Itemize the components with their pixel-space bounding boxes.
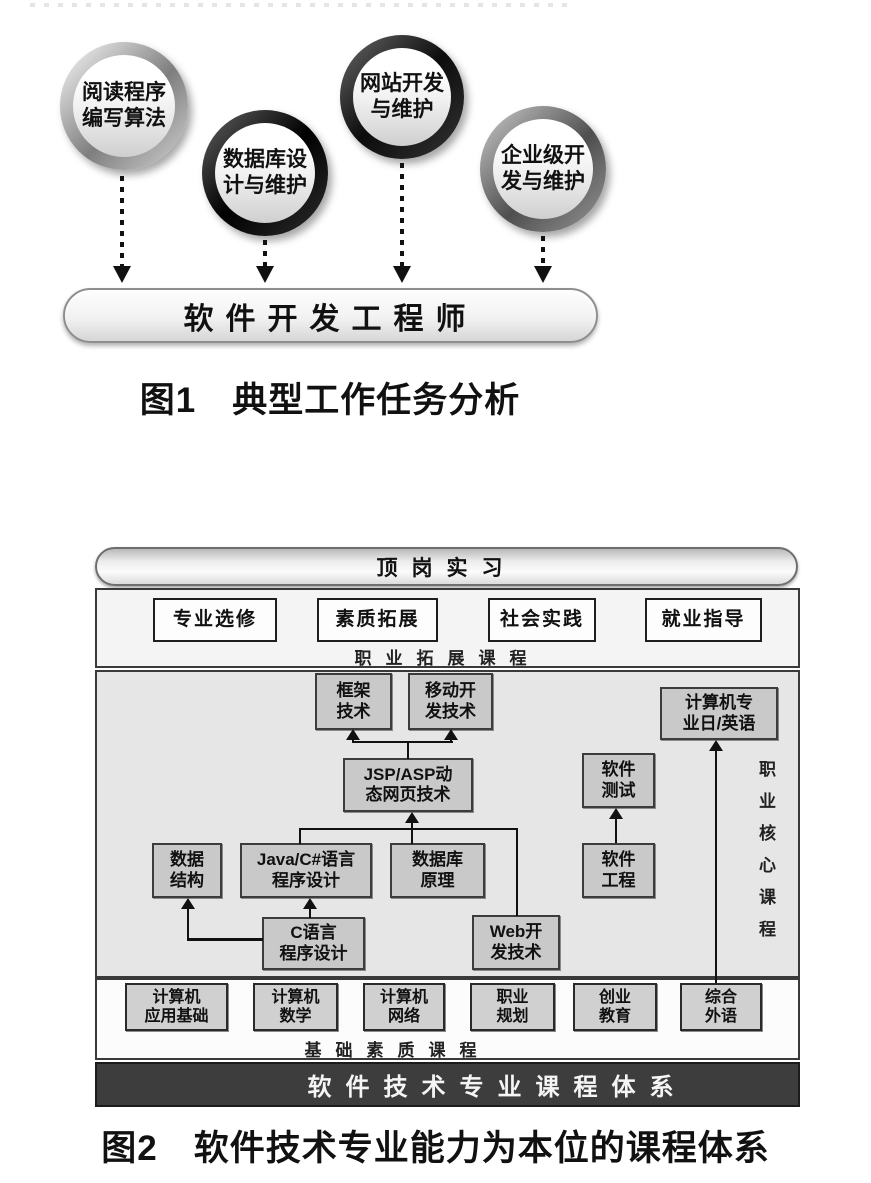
career-extension-label: 职业拓展课程 bbox=[95, 644, 800, 669]
dotted-arrow-line bbox=[263, 240, 267, 266]
course-box-entrepreneurship: 创业 教育 bbox=[573, 983, 657, 1031]
connector-line bbox=[516, 828, 518, 916]
dotted-arrow-line bbox=[541, 236, 545, 266]
task-label-line: 阅读程序 bbox=[82, 80, 166, 106]
arrow-down-icon bbox=[534, 266, 552, 283]
course-label-line: Java/C#语言 bbox=[257, 850, 355, 870]
course-label-line: 业日/英语 bbox=[683, 714, 756, 734]
scanned-figure-page: 阅读程序 编写算法 数据库设 计与维护 网站开发 与维护 企业级开 发与维护 软… bbox=[0, 0, 871, 1183]
task-label-line: 编写算法 bbox=[82, 106, 166, 132]
course-box-cs-foreign-language: 计算机专 业日/英语 bbox=[660, 687, 778, 740]
course-label-line: 移动开 bbox=[425, 681, 476, 701]
course-label-line: 结构 bbox=[170, 871, 204, 891]
course-label-line: 软件 bbox=[602, 850, 636, 870]
arrow-down-icon bbox=[393, 266, 411, 283]
arrow-up-icon bbox=[444, 729, 458, 740]
course-label-line: 数据库 bbox=[412, 850, 463, 870]
task-bubble-inner: 企业级开 发与维护 bbox=[493, 119, 593, 219]
course-label-line: 规划 bbox=[496, 1007, 528, 1026]
task-bubble-website-dev: 网站开发 与维护 bbox=[340, 35, 464, 159]
role-bar: 软件开发工程师 bbox=[63, 288, 598, 343]
curriculum-system-bar: 软件技术专业课程体系 bbox=[95, 1062, 800, 1107]
course-label-line: 计算机 bbox=[271, 988, 319, 1007]
course-label-line: C语言 bbox=[290, 923, 336, 943]
course-label-line: 教育 bbox=[599, 1007, 631, 1026]
internship-pill: 顶岗实习 bbox=[95, 547, 798, 586]
course-label-line: 程序设计 bbox=[272, 871, 340, 891]
arrow-up-icon bbox=[346, 729, 360, 740]
arrow-up-icon bbox=[609, 808, 623, 819]
course-box-web-dev: Web开 发技术 bbox=[472, 915, 560, 970]
arrow-up-icon bbox=[181, 898, 195, 909]
connector-line bbox=[407, 741, 409, 759]
task-label-line: 企业级开 bbox=[501, 143, 585, 169]
task-label-line: 数据库设 bbox=[223, 147, 307, 173]
course-label-line: 创业 bbox=[599, 988, 631, 1007]
course-label-line: 综合 bbox=[705, 988, 737, 1007]
scan-artifact bbox=[30, 3, 575, 7]
curriculum-system-label: 软件技术专业课程体系 bbox=[308, 1067, 688, 1102]
course-label-line: 原理 bbox=[421, 871, 455, 891]
role-label: 软件开发工程师 bbox=[184, 294, 478, 338]
connector-line bbox=[352, 741, 453, 743]
dotted-arrow-line bbox=[120, 176, 124, 266]
task-bubble-enterprise-dev: 企业级开 发与维护 bbox=[480, 106, 606, 232]
course-box-social-practice: 社会实践 bbox=[488, 598, 596, 642]
course-label-line: 计算机 bbox=[380, 988, 428, 1007]
course-box-database-principles: 数据库 原理 bbox=[390, 843, 485, 898]
course-label-line: 网络 bbox=[388, 1007, 420, 1026]
course-box-career-planning: 职业 规划 bbox=[470, 983, 555, 1031]
course-label-line: 程序设计 bbox=[280, 944, 348, 964]
course-box-electives: 专业选修 bbox=[153, 598, 277, 642]
connector-bus-line bbox=[299, 828, 518, 830]
course-label-line: JSP/ASP动 bbox=[364, 765, 453, 785]
course-box-quality-dev: 素质拓展 bbox=[317, 598, 438, 642]
course-box-computer-network: 计算机 网络 bbox=[363, 983, 445, 1031]
course-box-computer-basics: 计算机 应用基础 bbox=[125, 983, 228, 1031]
task-bubble-inner: 数据库设 计与维护 bbox=[215, 123, 315, 223]
course-box-employment-guidance: 就业指导 bbox=[645, 598, 762, 642]
arrow-up-icon bbox=[303, 898, 317, 909]
course-box-data-structure: 数据 结构 bbox=[152, 843, 222, 898]
course-label-line: 软件 bbox=[602, 760, 636, 780]
task-label-line: 网站开发 bbox=[360, 71, 444, 97]
connector-line bbox=[715, 749, 717, 983]
task-bubble-inner: 阅读程序 编写算法 bbox=[73, 55, 175, 157]
career-core-label: 职业核心课程 bbox=[744, 760, 778, 965]
connector-line bbox=[299, 828, 301, 844]
foundation-label: 基础素质课程 bbox=[95, 1036, 800, 1061]
course-box-mobile-dev: 移动开 发技术 bbox=[408, 673, 493, 730]
arrow-down-icon bbox=[256, 266, 274, 283]
course-label-line: 发技术 bbox=[491, 943, 542, 963]
course-label-line: Web开 bbox=[490, 922, 543, 942]
course-label-line: 计算机 bbox=[152, 988, 200, 1007]
course-label-line: 工程 bbox=[602, 871, 636, 891]
course-label-line: 测试 bbox=[602, 781, 636, 801]
task-bubble-read-program: 阅读程序 编写算法 bbox=[60, 42, 188, 170]
figure1-caption: 图1 典型工作任务分析 bbox=[0, 372, 660, 423]
task-label-line: 与维护 bbox=[371, 97, 434, 123]
course-label-line: 职业 bbox=[496, 988, 528, 1007]
course-box-java-csharp: Java/C#语言 程序设计 bbox=[240, 843, 372, 898]
course-box-software-engineering: 软件 工程 bbox=[582, 843, 655, 898]
course-box-foreign-language: 综合 外语 bbox=[680, 983, 762, 1031]
course-box-software-testing: 软件 测试 bbox=[582, 753, 655, 808]
course-box-c-language: C语言 程序设计 bbox=[262, 917, 365, 970]
figure2-caption: 图2 软件技术专业能力为本位的课程体系 bbox=[40, 1120, 831, 1171]
course-label-line: 发技术 bbox=[425, 702, 476, 722]
course-box-jsp-asp: JSP/ASP动 态网页技术 bbox=[343, 758, 473, 812]
connector-line bbox=[615, 817, 617, 843]
course-label-line: 态网页技术 bbox=[366, 785, 451, 805]
course-label-line: 计算机专 bbox=[685, 693, 753, 713]
course-label-line: 外语 bbox=[705, 1007, 737, 1026]
arrow-down-icon bbox=[113, 266, 131, 283]
connector-line bbox=[411, 820, 413, 844]
arrow-up-icon bbox=[405, 812, 419, 823]
course-label-line: 数据 bbox=[170, 850, 204, 870]
course-label-line: 应用基础 bbox=[144, 1007, 208, 1026]
connector-line bbox=[187, 938, 263, 941]
task-label-line: 计与维护 bbox=[223, 173, 307, 199]
internship-label: 顶岗实习 bbox=[377, 552, 517, 582]
course-label-line: 框架 bbox=[337, 681, 371, 701]
connector-line bbox=[187, 908, 189, 941]
course-label-line: 技术 bbox=[337, 702, 371, 722]
task-bubble-database-design: 数据库设 计与维护 bbox=[202, 110, 328, 236]
arrow-up-icon bbox=[709, 740, 723, 751]
dotted-arrow-line bbox=[400, 163, 404, 266]
task-label-line: 发与维护 bbox=[501, 169, 585, 195]
course-box-framework: 框架 技术 bbox=[315, 673, 392, 730]
course-box-computer-math: 计算机 数学 bbox=[253, 983, 338, 1031]
course-label-line: 数学 bbox=[279, 1007, 311, 1026]
task-bubble-inner: 网站开发 与维护 bbox=[353, 48, 451, 146]
